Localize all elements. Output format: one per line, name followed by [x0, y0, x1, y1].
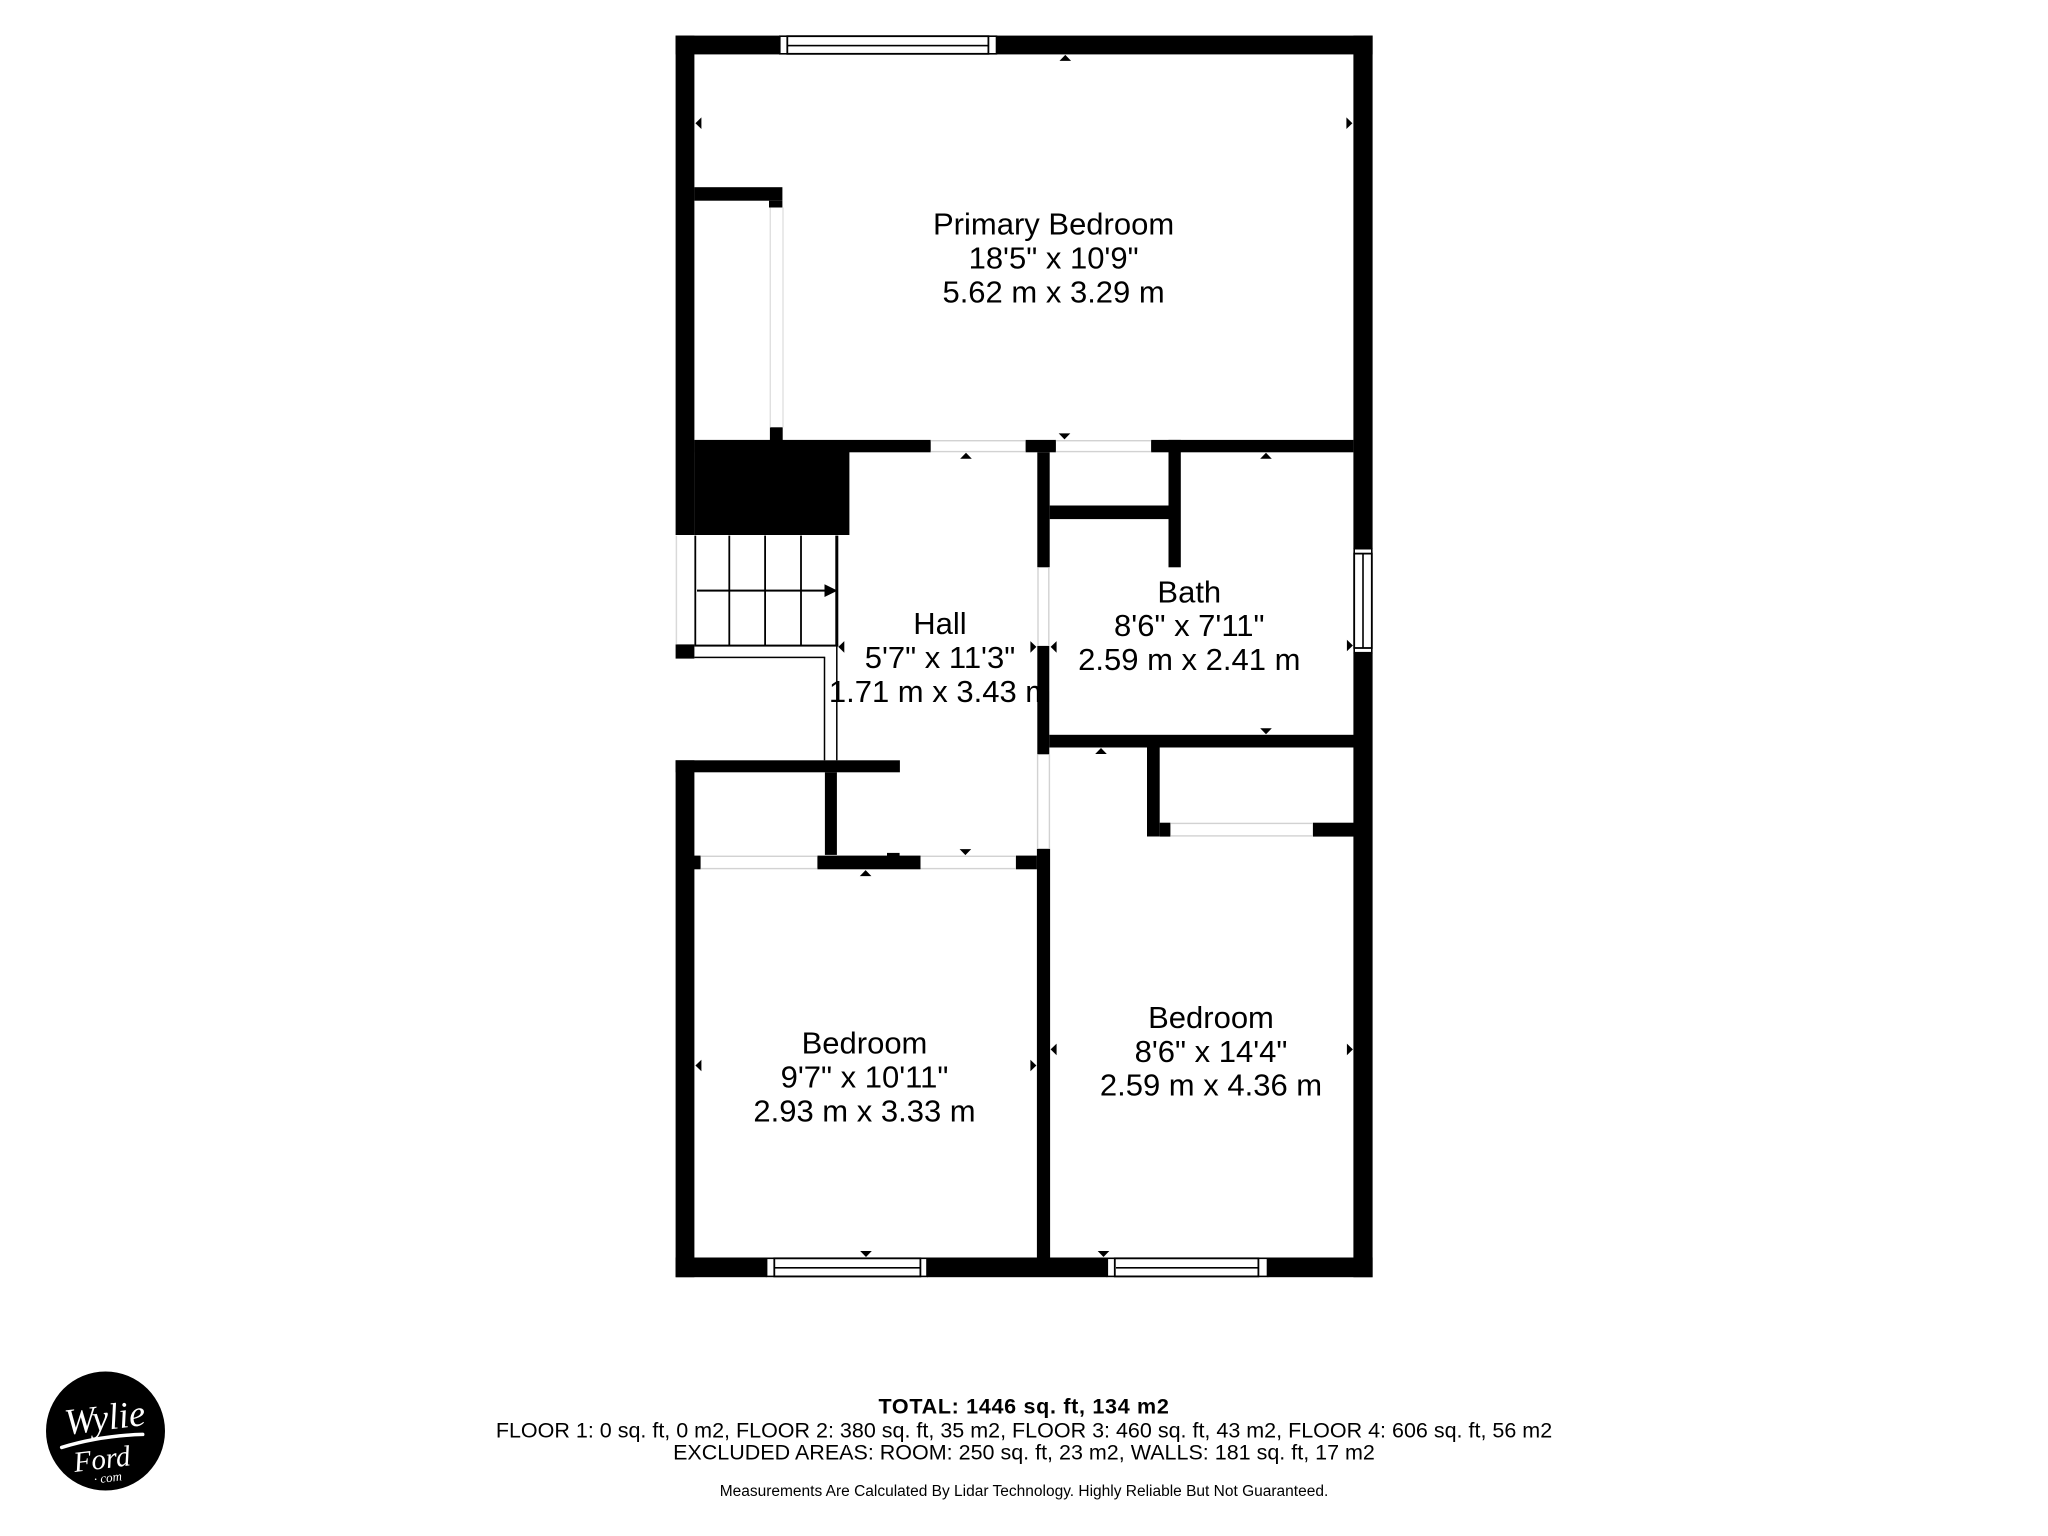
svg-text:EXCLUDED AREAS: ROOM: 250 sq.: EXCLUDED AREAS: ROOM: 250 sq. ft, 23 m2,… — [673, 1441, 1375, 1465]
svg-text:Bedroom: Bedroom — [802, 1026, 928, 1061]
svg-text:8'6" x 14'4": 8'6" x 14'4" — [1135, 1034, 1288, 1069]
svg-text:1.71 m x 3.43 m: 1.71 m x 3.43 m — [829, 674, 1051, 709]
svg-text:Bath: Bath — [1157, 575, 1221, 610]
svg-text:Bedroom: Bedroom — [1148, 1000, 1274, 1035]
svg-text:Measurements Are Calculated By: Measurements Are Calculated By Lidar Tec… — [720, 1483, 1329, 1500]
svg-text:18'5" x 10'9": 18'5" x 10'9" — [969, 241, 1139, 276]
svg-text:2.59 m x 4.36 m: 2.59 m x 4.36 m — [1100, 1068, 1322, 1103]
svg-text:2.59 m x 2.41 m: 2.59 m x 2.41 m — [1078, 642, 1300, 677]
svg-text:Primary Bedroom: Primary Bedroom — [933, 206, 1174, 241]
svg-text:9'7" x 10'11": 9'7" x 10'11" — [781, 1060, 949, 1095]
svg-text:5'7" x 11'3": 5'7" x 11'3" — [865, 640, 1015, 675]
svg-text:TOTAL: 1446 sq. ft, 134 m2: TOTAL: 1446 sq. ft, 134 m2 — [878, 1395, 1169, 1419]
svg-text:8'6" x 7'11": 8'6" x 7'11" — [1114, 608, 1264, 643]
svg-text:Hall: Hall — [913, 606, 966, 641]
svg-text:5.62 m x 3.29 m: 5.62 m x 3.29 m — [942, 275, 1164, 310]
svg-text:FLOOR 1: 0 sq. ft, 0 m2, FLOOR: FLOOR 1: 0 sq. ft, 0 m2, FLOOR 2: 380 sq… — [496, 1418, 1552, 1442]
svg-text:2.93 m x 3.33 m: 2.93 m x 3.33 m — [753, 1093, 975, 1128]
